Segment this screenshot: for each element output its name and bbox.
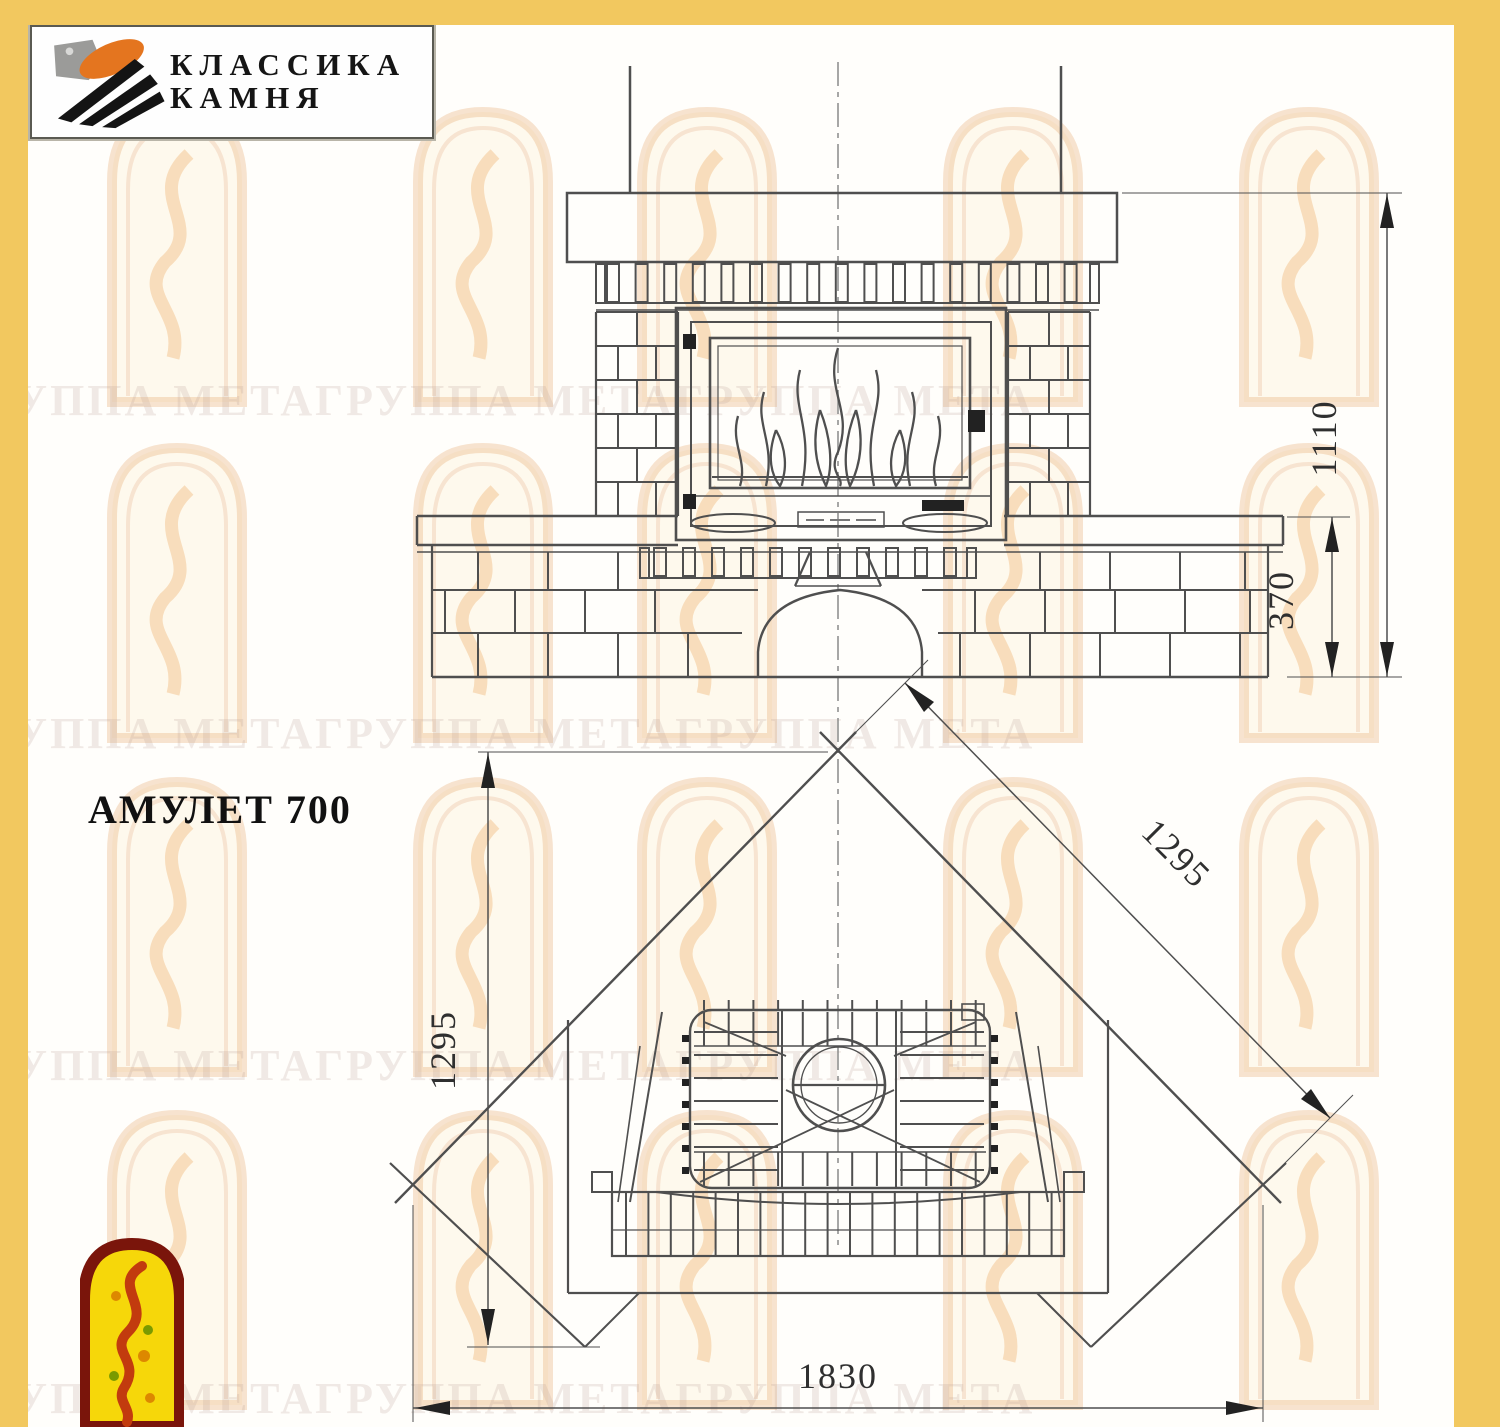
technical-drawing: 1110 370 1295 1295 1830 (0, 0, 1500, 1427)
dim-plan-depth: 1295 (423, 1010, 463, 1090)
page-border-top (0, 0, 1500, 25)
brand-name-line1: КЛАССИКА (170, 49, 406, 82)
brand-name: КЛАССИКА КАМНЯ (170, 49, 406, 114)
dim-plan-wall: 1295 (1134, 811, 1219, 896)
product-title: АМУЛЕТ 700 (88, 786, 352, 833)
page-border-right (1454, 0, 1500, 1427)
dim-bench-height: 370 (1261, 570, 1301, 630)
page-border-left (0, 0, 28, 1427)
dim-plan-width: 1830 (798, 1356, 878, 1396)
dim-front-height: 1110 (1304, 399, 1344, 476)
brand-name-line2: КАМНЯ (170, 82, 406, 115)
brand-logo: КЛАССИКА КАМНЯ (30, 25, 434, 139)
catalog-page: ГРУППА МЕТАГРУППА МЕТАГРУППА МЕТА ГРУППА… (0, 0, 1500, 1427)
flame-window-logo (80, 1238, 184, 1427)
drawing-linework (390, 62, 1402, 1422)
stone-logo-icon (40, 34, 170, 130)
